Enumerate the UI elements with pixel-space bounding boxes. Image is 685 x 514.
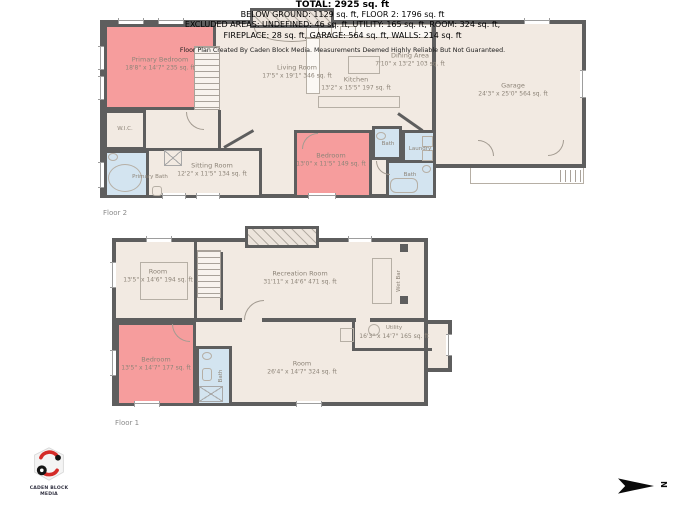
window [296, 401, 322, 407]
logo-cube-icon [31, 446, 67, 482]
entry-steps-icon [556, 170, 582, 182]
summary-line-1: BELOW GROUND: 1129 sq. ft, FLOOR 2: 1796… [0, 10, 685, 20]
north-arrow: N [618, 472, 678, 502]
window [196, 193, 220, 199]
window [110, 262, 116, 288]
north-letter: N [659, 481, 668, 488]
room-label-laundry: Laundry [409, 146, 431, 154]
room-label-bath-upper-f2: Bath [382, 141, 395, 149]
room-name: Living Room [262, 63, 331, 72]
area-summary: TOTAL: 2925 sq. ft BELOW GROUND: 1129 sq… [0, 0, 685, 54]
wet-bar-counter [372, 258, 392, 304]
window [98, 162, 104, 188]
room-name: Bath [382, 141, 395, 149]
logo-text-line2: MEDIA [22, 492, 76, 498]
room-name: W.I.C. [117, 126, 133, 134]
sink-icon [202, 352, 212, 360]
north-arrow-icon [618, 476, 654, 496]
bathtub-icon [390, 178, 418, 193]
window [162, 193, 186, 199]
entry-stoop [245, 226, 319, 248]
room-label-recreation-room: Recreation Room 31'11" x 14'6" 471 sq. f… [263, 269, 336, 286]
room-dims: 31'11" x 14'6" 471 sq. ft [263, 278, 336, 286]
shower-icon [199, 386, 223, 402]
room-label-garage: Garage 24'3" x 25'0" 564 sq. ft [478, 81, 547, 98]
room-dims: 16'3" x 14'7" 165 sq. ft [359, 333, 428, 341]
room-label-wet-bar: Wet Bar [396, 270, 404, 292]
room-label-sitting-room: Sitting Room 12'2" x 11'5" 134 sq. ft [177, 161, 246, 178]
room-name: Garage [478, 81, 547, 90]
utility-wall-h [352, 348, 432, 351]
room-label-primary-bath: Primary Bath [132, 174, 168, 182]
total-area: TOTAL: 2925 sq. ft [0, 0, 685, 10]
window [146, 236, 172, 242]
room-name: Utility [359, 325, 428, 333]
sink-icon [108, 153, 118, 161]
window [446, 334, 452, 356]
window [98, 76, 104, 100]
room-label-bath-lower-f2: Bath [404, 172, 417, 180]
summary-line-2: EXCLUDED AREAS: UNDEFINED: 46 sq. ft, UT… [0, 20, 685, 30]
room-name: Primary Bath [132, 174, 168, 182]
room-label-room-upper: Room 13'5" x 14'6" 194 sq. ft [123, 267, 192, 284]
room-dims: 18'8" x 14'7" 235 sq. ft [125, 64, 194, 72]
sink-icon [422, 165, 431, 173]
door-opening [356, 318, 370, 322]
room-dims: 13'2" x 15'5" 197 sq. ft [321, 84, 390, 92]
sofa [318, 96, 400, 108]
bar-post [400, 296, 408, 304]
room-label-bedroom-f2: Bedroom 13'0" x 11'5" 149 sq. ft [296, 151, 365, 168]
room-label-kitchen: Kitchen 13'2" x 15'5" 197 sq. ft [321, 75, 390, 92]
sink-icon [376, 132, 386, 140]
floor-plan-page: Primary Bedroom 18'8" x 14'7" 235 sq. ft… [0, 0, 685, 514]
window [134, 401, 160, 407]
room-dims: 24'3" x 25'0" 564 sq. ft [478, 90, 547, 98]
furnace-icon [340, 328, 354, 342]
room-dims: 13'5" x 14'7" 177 sq. ft [121, 364, 190, 372]
window [110, 350, 116, 376]
room-label-bath-f1: Bath [218, 370, 226, 383]
room-label-wic: W.I.C. [117, 126, 133, 134]
room-label-room-lower: Room 26'4" x 14'7" 324 sq. ft [267, 359, 336, 376]
room-name: Primary Bedroom [125, 55, 194, 64]
floor1-tag: Floor 1 [115, 419, 139, 427]
room-dims: 26'4" x 14'7" 324 sq. ft [267, 368, 336, 376]
room-label-utility: Utility 16'3" x 14'7" 165 sq. ft [359, 325, 428, 341]
room-name: Recreation Room [263, 269, 336, 278]
room-name: Kitchen [321, 75, 390, 84]
window [308, 193, 336, 199]
room-label-primary-bedroom: Primary Bedroom 18'8" x 14'7" 235 sq. ft [125, 55, 194, 72]
room-name: Bath [404, 172, 417, 180]
room-name: Bedroom [121, 355, 190, 364]
stairs-f1 [197, 250, 221, 298]
room-dims: 7'10" x 13'2" 103 sq. ft [375, 60, 444, 68]
summary-line-3: FIREPLACE: 28 sq. ft, GARAGE: 564 sq. ft… [0, 31, 685, 41]
room-label-bedroom-f1: Bedroom 13'5" x 14'7" 177 sq. ft [121, 355, 190, 372]
room-name: Room [267, 359, 336, 368]
window [348, 236, 372, 242]
window [580, 70, 586, 98]
room-name: Bedroom [296, 151, 365, 160]
room-dims: 13'5" x 14'6" 194 sq. ft [123, 276, 192, 284]
stairs-f2 [194, 46, 220, 110]
hall-wall-f2 [218, 110, 221, 148]
toilet-icon [152, 186, 162, 196]
room-name: Sitting Room [177, 161, 246, 170]
room-dims: 12'2" x 11'5" 134 sq. ft [177, 170, 246, 178]
room-name: Wet Bar [396, 270, 404, 292]
caden-block-media-logo: CADEN BLOCK MEDIA [22, 446, 76, 498]
room-name: Bath [218, 370, 226, 383]
room-dims: 13'0" x 11'5" 149 sq. ft [296, 160, 365, 168]
bar-post [400, 244, 408, 252]
disclaimer: Floor Plan Created By Caden Block Media.… [0, 47, 685, 54]
room-name: Laundry [409, 146, 431, 154]
room-name: Room [123, 267, 192, 276]
floor2-tag: Floor 2 [103, 209, 127, 217]
toilet-icon [202, 368, 212, 381]
